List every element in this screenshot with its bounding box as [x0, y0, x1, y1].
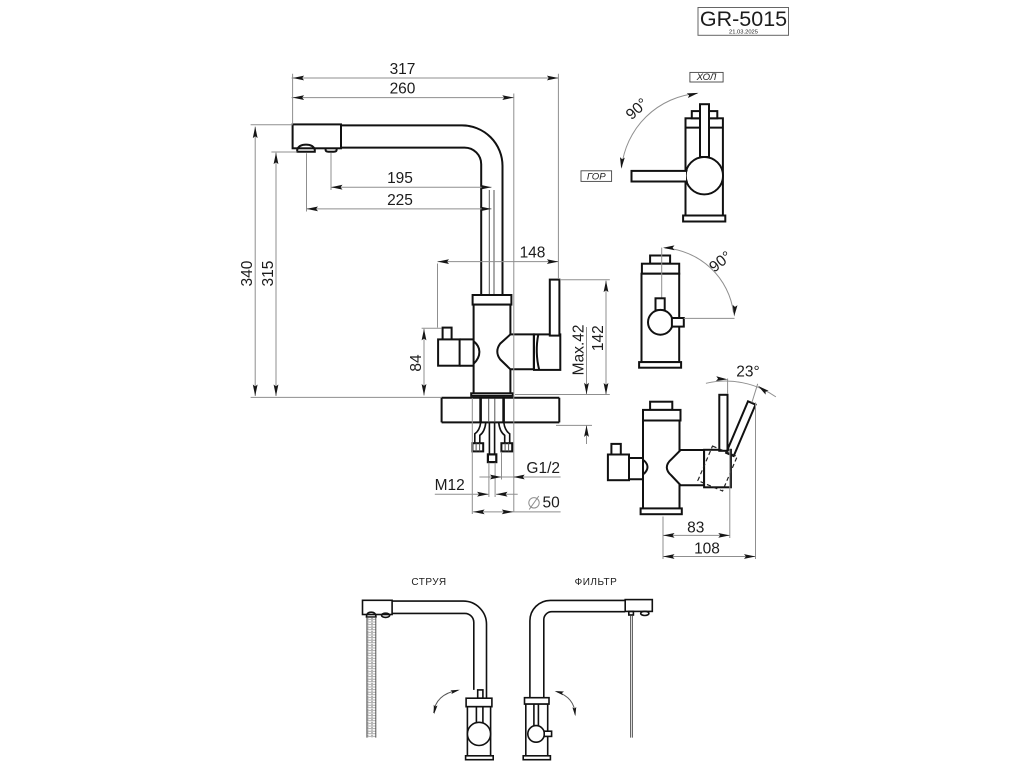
- svg-text:225: 225: [387, 192, 413, 209]
- svg-text:148: 148: [520, 245, 546, 262]
- svg-text:Max.42: Max.42: [571, 324, 588, 375]
- svg-text:50: 50: [543, 495, 561, 512]
- svg-text:ХОЛ: ХОЛ: [696, 72, 717, 83]
- svg-text:G1/2: G1/2: [526, 460, 560, 477]
- svg-text:340: 340: [239, 260, 256, 286]
- svg-text:GR-5015: GR-5015: [700, 7, 787, 31]
- svg-text:21.03.2025: 21.03.2025: [729, 30, 758, 36]
- svg-text:23°: 23°: [736, 364, 759, 381]
- svg-text:317: 317: [390, 61, 416, 78]
- svg-text:СТРУЯ: СТРУЯ: [411, 577, 446, 588]
- svg-text:108: 108: [694, 541, 720, 558]
- svg-text:M12: M12: [435, 477, 465, 494]
- svg-text:ГОР: ГОР: [587, 171, 606, 182]
- svg-text:83: 83: [687, 520, 704, 537]
- svg-text:ФИЛЬТР: ФИЛЬТР: [575, 577, 618, 588]
- svg-text:142: 142: [590, 325, 607, 351]
- svg-text:195: 195: [387, 170, 413, 187]
- svg-text:315: 315: [260, 261, 277, 287]
- svg-text:84: 84: [408, 354, 425, 372]
- svg-text:260: 260: [390, 81, 416, 98]
